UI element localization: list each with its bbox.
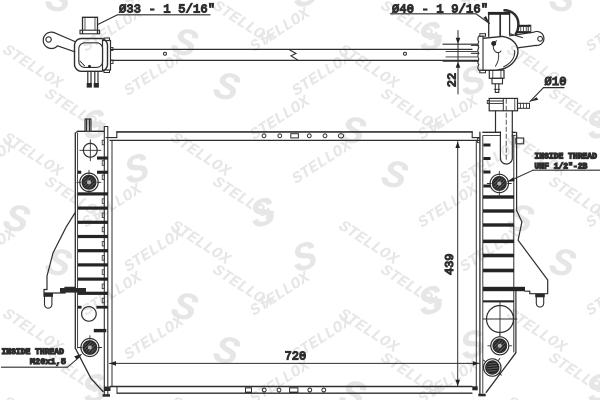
svg-text:720: 720 <box>285 350 307 364</box>
svg-text:Ø10: Ø10 <box>545 75 567 89</box>
svg-text:22: 22 <box>446 73 460 87</box>
svg-text:INSIDE THREAD: INSIDE THREAD <box>2 348 65 357</box>
svg-text:M20x1,5: M20x1,5 <box>30 357 66 367</box>
svg-text:INSIDE THREAD: INSIDE THREAD <box>535 152 598 161</box>
svg-text:439: 439 <box>443 253 457 275</box>
